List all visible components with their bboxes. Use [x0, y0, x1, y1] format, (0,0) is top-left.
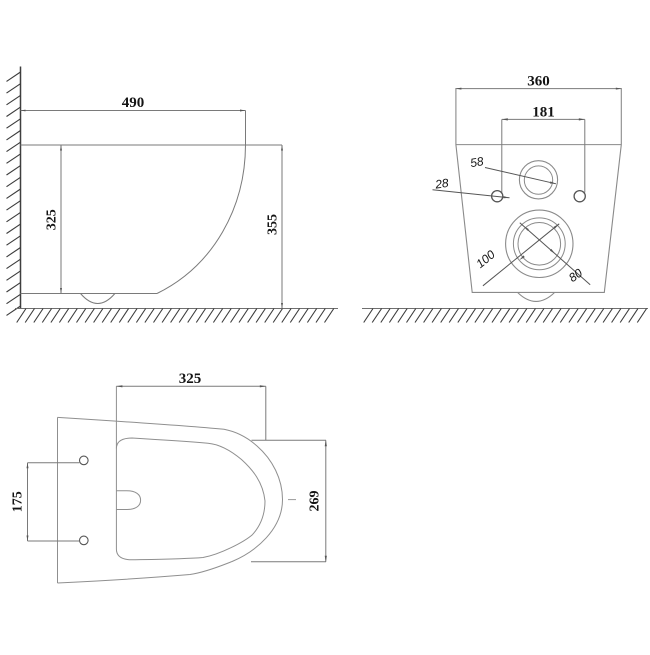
svg-text:325: 325	[179, 371, 202, 387]
svg-text:360: 360	[527, 74, 550, 90]
svg-text:355: 355	[266, 214, 281, 235]
svg-text:58: 58	[469, 154, 485, 170]
svg-text:269: 269	[308, 491, 323, 512]
svg-text:175: 175	[11, 491, 26, 512]
svg-text:490: 490	[122, 95, 145, 111]
svg-text:28: 28	[433, 176, 449, 192]
svg-text:325: 325	[45, 209, 60, 230]
svg-text:181: 181	[532, 105, 555, 121]
